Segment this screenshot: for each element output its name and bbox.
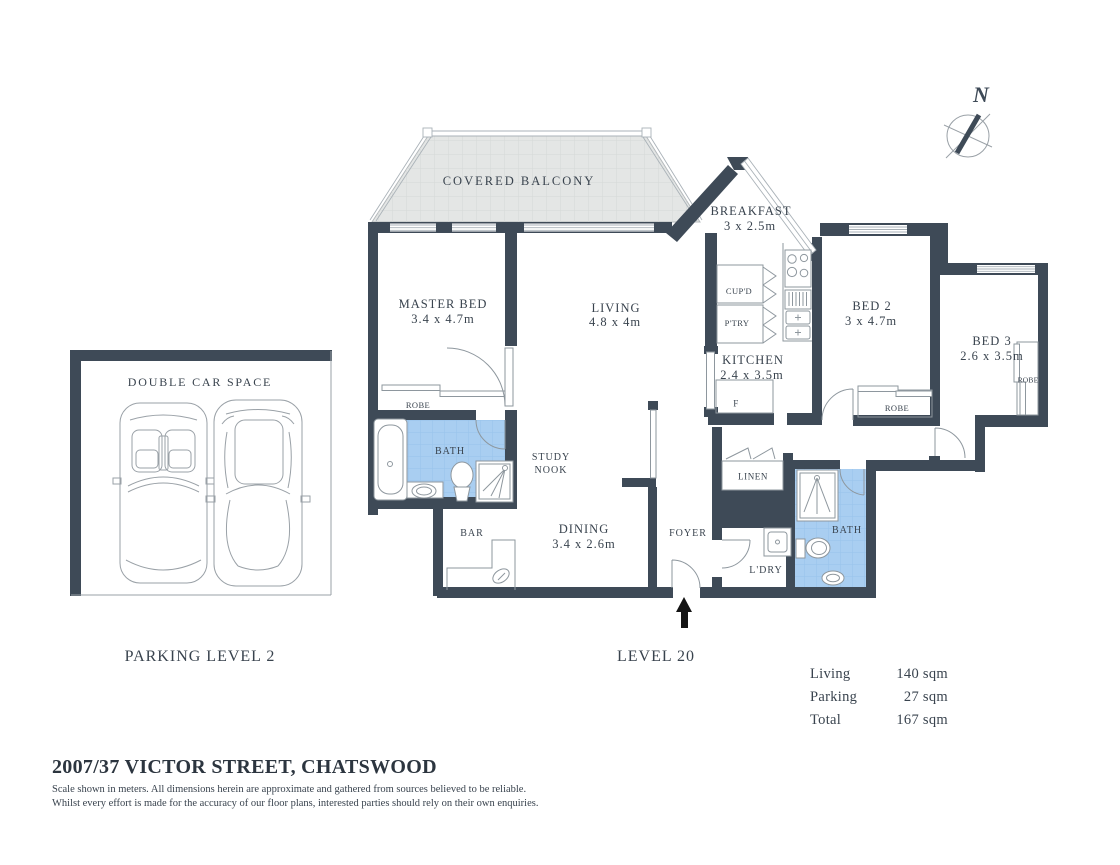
label-robe-master: ROBE (406, 401, 430, 410)
label-dining: DINING (559, 523, 609, 536)
compass-icon (944, 114, 992, 158)
compass-north-label: N (973, 82, 989, 108)
bar-counter (447, 540, 515, 590)
label-kitchen: KITCHEN (722, 354, 784, 367)
label-linen: LINEN (738, 473, 768, 482)
label-laundry: L'DRY (749, 566, 782, 576)
label-kitchen-dims: 2.4 x 3.5m (720, 369, 783, 382)
label-bath-master: BATH (435, 447, 465, 457)
label-pantry: P'TRY (725, 319, 750, 328)
area-label: Living (810, 666, 850, 683)
label-robe-bed3: ROBE (1018, 376, 1039, 384)
label-breakfast: BREAKFAST (710, 205, 791, 218)
label-living: LIVING (591, 302, 640, 315)
floor-plan-page: COVERED BALCONY MASTER BED 3.4 x 4.7m LI… (0, 0, 1120, 865)
label-foyer: FOYER (669, 529, 707, 539)
area-value: 167 sqm (896, 712, 948, 729)
label-bath-main: BATH (832, 526, 862, 536)
entry-arrow-icon (676, 597, 692, 628)
disclaimer-line1: Scale shown in meters. All dimensions he… (52, 783, 752, 797)
level-label: LEVEL 20 (617, 649, 695, 665)
footer: 2007/37 VICTOR STREET, CHATSWOOD Scale s… (52, 756, 752, 810)
address-title: 2007/37 VICTOR STREET, CHATSWOOD (52, 756, 752, 779)
label-master-bed-dims: 3.4 x 4.7m (411, 313, 474, 326)
parking-level-label: PARKING LEVEL 2 (125, 649, 276, 665)
label-dining-dims: 3.4 x 2.6m (552, 538, 615, 551)
double-car-space-label: DOUBLE CAR SPACE (128, 376, 272, 388)
label-master-bed: MASTER BED (399, 298, 488, 311)
car-convertible-icon (113, 403, 214, 583)
area-value: 27 sqm (904, 689, 948, 706)
label-bed2-dims: 3 x 4.7m (845, 315, 897, 328)
car-sedan-icon (206, 400, 310, 586)
area-row-total: Total 167 sqm (810, 709, 948, 732)
label-robe-bed2: ROBE (885, 404, 909, 413)
floor-plan-drawing (0, 0, 1120, 865)
label-fridge: F (733, 400, 739, 409)
area-label: Parking (810, 689, 857, 706)
disclaimer-line2: Whilst every effort is made for the accu… (52, 797, 752, 811)
area-row-parking: Parking 27 sqm (810, 686, 948, 709)
area-label: Total (810, 712, 841, 729)
label-bar: BAR (460, 529, 484, 539)
label-bed3: BED 3 (972, 335, 1011, 348)
label-study-nook-line2: NOOK (535, 466, 568, 476)
label-cupboard: CUP'D (726, 287, 752, 296)
label-covered-balcony: COVERED BALCONY (443, 175, 596, 188)
area-summary: Living 140 sqm Parking 27 sqm Total 167 … (810, 663, 948, 732)
area-row-living: Living 140 sqm (810, 663, 948, 686)
label-bed3-dims: 2.6 x 3.5m (960, 350, 1023, 363)
label-living-dims: 4.8 x 4m (589, 316, 641, 329)
label-study-nook-line1: STUDY (532, 453, 570, 463)
area-value: 140 sqm (896, 666, 948, 683)
label-bed2: BED 2 (852, 300, 891, 313)
label-breakfast-dims: 3 x 2.5m (724, 220, 776, 233)
